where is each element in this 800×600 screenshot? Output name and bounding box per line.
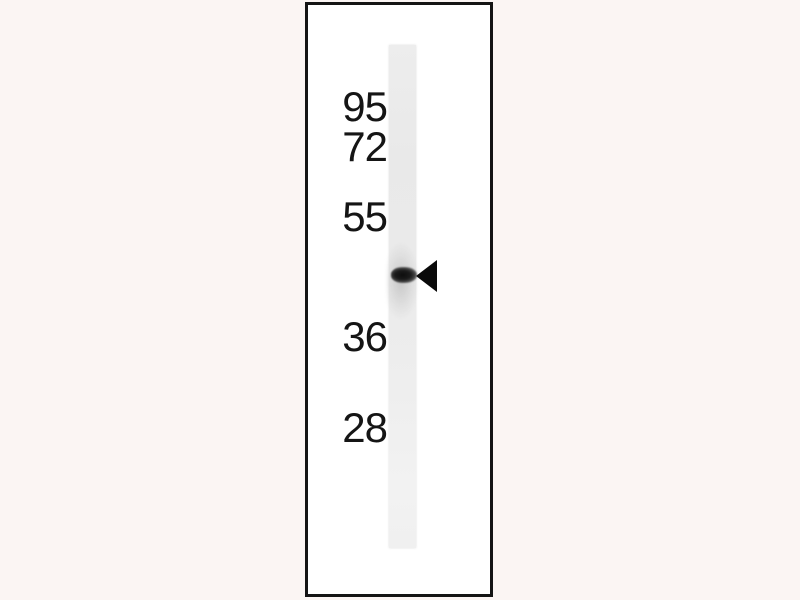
mw-marker-label: 28 — [308, 407, 387, 449]
left-arrowhead-icon — [416, 260, 437, 292]
mw-marker-label: 95 — [308, 86, 387, 128]
blot-figure-frame: 95 72 55 36 28 — [305, 2, 493, 597]
page-background: 95 72 55 36 28 — [0, 0, 800, 600]
mw-marker-label: 55 — [308, 196, 387, 238]
mw-marker-label: 72 — [308, 126, 387, 168]
mw-marker-label: 36 — [308, 316, 387, 358]
protein-band — [391, 267, 417, 283]
